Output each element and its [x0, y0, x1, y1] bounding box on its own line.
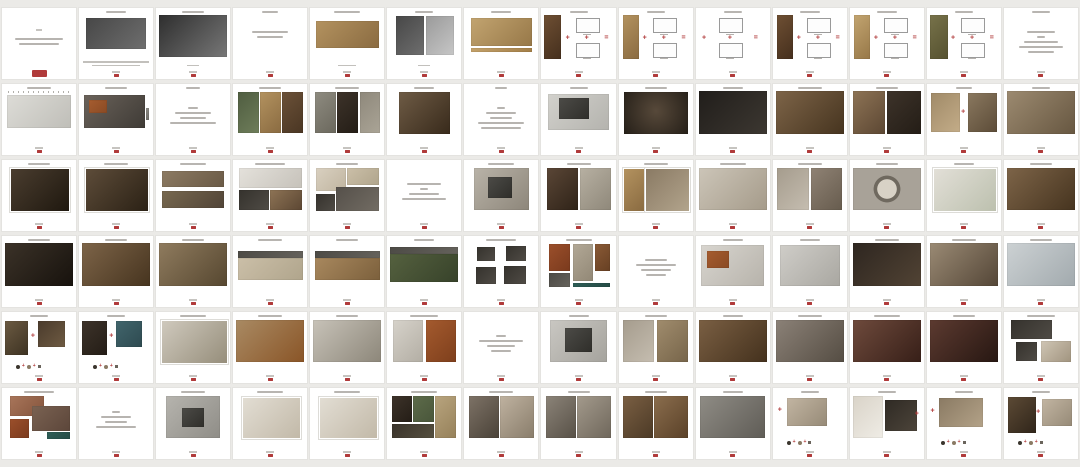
slide-footer — [387, 451, 461, 457]
slide-thumbnail[interactable]: + — [850, 388, 924, 459]
slide-title — [28, 163, 50, 165]
brand-logo — [114, 74, 119, 77]
slide-image — [577, 396, 611, 438]
image-caption — [82, 61, 150, 66]
slide-image — [506, 246, 526, 261]
slide-thumbnail[interactable] — [2, 8, 76, 79]
slide-thumbnail[interactable] — [310, 236, 384, 307]
caption-line — [83, 61, 149, 63]
brand-logo — [268, 378, 273, 381]
slide-footer — [619, 451, 693, 457]
plus-icon: + — [1024, 440, 1027, 445]
brand-logo — [345, 302, 350, 305]
slide-content — [1007, 91, 1075, 142]
slide-image — [595, 244, 610, 271]
slide-thumbnail[interactable] — [387, 388, 461, 459]
slide-thumbnail[interactable] — [464, 236, 538, 307]
slide-thumbnail[interactable] — [387, 236, 461, 307]
slide-content — [236, 167, 304, 218]
slide-image — [699, 168, 767, 210]
slide-thumbnail[interactable]: +++ — [79, 312, 153, 383]
slide-image — [476, 267, 496, 283]
slide-footer — [541, 375, 615, 381]
brand-logo — [576, 226, 581, 229]
text-line — [170, 122, 216, 124]
slide-footer — [387, 375, 461, 381]
brand-logo — [345, 226, 350, 229]
slide-image — [7, 95, 71, 128]
slide-thumbnail[interactable] — [387, 160, 461, 231]
slide-thumbnail[interactable] — [2, 84, 76, 155]
slide-title — [27, 87, 51, 89]
slide-thumbnail[interactable] — [233, 236, 307, 307]
slide-thumbnail[interactable] — [927, 160, 1001, 231]
slide-title — [30, 315, 48, 317]
page-number — [266, 451, 274, 453]
slide-thumbnail[interactable] — [156, 388, 230, 459]
text-line — [1037, 36, 1045, 38]
slide-thumbnail[interactable]: +++ — [773, 388, 847, 459]
slide-thumbnail[interactable] — [696, 236, 770, 307]
slide-title — [875, 239, 899, 241]
plus-icon: + — [1036, 409, 1040, 416]
slide-image — [182, 408, 204, 426]
slide-image — [699, 320, 767, 362]
slide-image — [435, 396, 455, 438]
brand-logo — [730, 150, 735, 153]
text-line — [497, 107, 505, 109]
brand-logo — [653, 378, 658, 381]
slide-title — [105, 87, 127, 89]
slide-content — [544, 395, 612, 446]
slide-title — [800, 11, 820, 13]
slide-content — [467, 319, 535, 370]
material-dot-icon — [798, 441, 802, 445]
slide-thumbnail[interactable]: +++ — [2, 312, 76, 383]
slide-footer — [927, 147, 1001, 153]
slide-thumbnail[interactable] — [1004, 160, 1078, 231]
slide-image — [854, 15, 870, 59]
slide-thumbnail[interactable] — [156, 236, 230, 307]
slide-title — [414, 87, 434, 89]
slide-thumbnail[interactable]: ++= — [850, 8, 924, 79]
slide-footer — [387, 223, 461, 229]
brand-logo — [114, 150, 119, 153]
slide-title — [489, 391, 513, 393]
slide-content — [159, 15, 227, 66]
caption-line — [187, 65, 199, 67]
equals-icon: = — [990, 34, 994, 41]
slide-footer — [464, 375, 538, 381]
page-number — [729, 223, 737, 225]
slide-content — [699, 167, 767, 218]
material-icons-row: ++ — [16, 364, 41, 369]
page-number — [806, 147, 814, 149]
slide-content — [390, 167, 458, 218]
slide-content: +++ — [930, 395, 998, 446]
slide-thumbnail[interactable] — [464, 84, 538, 155]
slide-thumbnail[interactable] — [156, 160, 230, 231]
slide-thumbnail[interactable] — [464, 388, 538, 459]
slide-footer — [310, 147, 384, 153]
brand-logo — [191, 378, 196, 381]
plus-icon: + — [31, 333, 35, 340]
slide-thumbnail[interactable] — [541, 312, 615, 383]
slide-content — [159, 395, 227, 446]
slide-thumbnail[interactable]: ++= — [541, 8, 615, 79]
slide-title — [798, 87, 822, 89]
slide-footer — [773, 451, 847, 457]
text-line — [481, 127, 521, 129]
brand-logo — [653, 226, 658, 229]
slide-title — [723, 239, 743, 241]
text-line — [1024, 41, 1058, 43]
plus-icon: + — [797, 34, 801, 41]
page-number — [1037, 451, 1045, 453]
slide-content — [390, 395, 458, 446]
slide-thumbnail[interactable]: ++= — [696, 8, 770, 79]
slide-thumbnail[interactable] — [619, 84, 693, 155]
slide-title — [955, 11, 973, 13]
brand-logo — [114, 378, 119, 381]
plus-icon: + — [99, 364, 102, 369]
slide-thumbnail[interactable] — [79, 8, 153, 79]
slide-footer — [1004, 147, 1078, 153]
plus-icon: + — [961, 109, 965, 116]
slide-thumbnail[interactable] — [850, 236, 924, 307]
slide-title — [645, 87, 667, 89]
slide-thumbnail[interactable] — [156, 84, 230, 155]
slide-footer — [773, 375, 847, 381]
slide-thumbnail[interactable]: +++ — [1004, 388, 1078, 459]
caption-line — [92, 65, 140, 67]
plus-icon: + — [728, 34, 732, 41]
plus-icon: + — [566, 34, 570, 41]
page-number — [806, 451, 814, 453]
slide-footer — [850, 451, 924, 457]
slide-title — [258, 315, 282, 317]
slide-thumbnail[interactable] — [79, 388, 153, 459]
slide-title — [255, 163, 285, 165]
slide-thumbnail[interactable] — [696, 160, 770, 231]
slide-thumbnail[interactable] — [541, 388, 615, 459]
page-number — [112, 299, 120, 301]
slide-content — [853, 91, 921, 142]
slide-image — [471, 48, 532, 53]
plus-icon: + — [33, 364, 36, 369]
plus-icon: + — [893, 34, 897, 41]
slide-thumbnail[interactable]: +++ — [927, 388, 1001, 459]
slide-image — [146, 108, 149, 119]
slide-image — [38, 321, 65, 347]
material-swatch-icon — [1040, 441, 1043, 444]
slide-title — [180, 315, 206, 317]
slide-image — [239, 190, 269, 209]
slide-image — [399, 92, 449, 134]
slide-title — [1032, 391, 1050, 393]
slide-thumbnail[interactable] — [541, 236, 615, 307]
page-number — [35, 375, 43, 377]
page-number — [112, 375, 120, 377]
slide-thumbnail[interactable] — [850, 84, 924, 155]
page-number — [189, 223, 197, 225]
slide-image — [580, 168, 611, 210]
slide-footer — [619, 223, 693, 229]
slide-image — [1041, 341, 1071, 361]
body-text — [159, 107, 227, 124]
slide-thumbnail[interactable] — [773, 312, 847, 383]
slide-thumbnail[interactable] — [1004, 236, 1078, 307]
brand-logo — [1038, 150, 1043, 153]
slide-thumbnail[interactable] — [310, 160, 384, 231]
page-number — [1037, 71, 1045, 73]
brand-logo — [422, 226, 427, 229]
page-number — [420, 451, 428, 453]
slide-thumbnail[interactable] — [156, 312, 230, 383]
slide-content — [622, 243, 690, 294]
slide-thumbnail[interactable] — [1004, 312, 1078, 383]
material-dot-icon — [952, 441, 956, 445]
slide-thumbnail[interactable] — [619, 388, 693, 459]
slide-footer — [619, 71, 693, 77]
slide-image — [853, 91, 886, 134]
material-icons-row: ++ — [1018, 440, 1043, 445]
slide-thumbnail[interactable] — [850, 160, 924, 231]
slide-image — [645, 168, 690, 212]
slide-image — [1007, 91, 1075, 134]
slide-image — [116, 321, 142, 347]
brand-logo — [653, 74, 658, 77]
slide-image — [623, 320, 654, 362]
slide-image — [390, 247, 458, 254]
slide-footer — [464, 71, 538, 77]
slide-image — [315, 258, 380, 279]
body-text — [390, 183, 458, 200]
page-number — [497, 223, 505, 225]
slide-thumbnail[interactable] — [387, 8, 461, 79]
equals-icon: = — [754, 34, 758, 41]
brand-logo — [1038, 454, 1043, 457]
slide-title — [952, 239, 976, 241]
slide-content — [313, 167, 381, 218]
slide-thumbnail[interactable] — [310, 84, 384, 155]
slide-thumbnail[interactable] — [541, 84, 615, 155]
page-number — [652, 299, 660, 301]
brand-logo — [807, 302, 812, 305]
slide-footer — [310, 375, 384, 381]
slide-thumbnail[interactable] — [696, 388, 770, 459]
slide-content — [5, 167, 73, 218]
page-number — [497, 147, 505, 149]
slide-thumbnail[interactable] — [464, 8, 538, 79]
slide-footer — [541, 147, 615, 153]
brand-logo — [37, 302, 42, 305]
page-number — [35, 223, 43, 225]
slide-footer — [927, 375, 1001, 381]
slide-thumbnail[interactable] — [696, 84, 770, 155]
slide-thumbnail[interactable] — [310, 388, 384, 459]
slide-footer — [2, 70, 76, 77]
text-line — [105, 421, 127, 423]
brand-logo — [345, 150, 350, 153]
slide-content — [853, 319, 921, 370]
slide-title — [800, 239, 820, 241]
slide-thumbnail[interactable] — [79, 236, 153, 307]
slide-footer — [233, 147, 307, 153]
brand-logo — [730, 378, 735, 381]
text-line — [420, 188, 428, 190]
slide-thumbnail[interactable] — [696, 312, 770, 383]
text-line — [641, 269, 671, 271]
page-number — [575, 223, 583, 225]
body-text — [467, 335, 535, 352]
slide-footer — [79, 451, 153, 457]
brand-logo — [114, 302, 119, 305]
slide-footer — [464, 299, 538, 305]
slide-thumbnail[interactable] — [1004, 8, 1078, 79]
slide-thumbnail[interactable] — [2, 160, 76, 231]
slide-thumbnail[interactable] — [387, 312, 461, 383]
slide-thumbnail[interactable] — [773, 84, 847, 155]
presentation-overview: ++=++=++=++=++=++=+++++++++++++++++ — [0, 0, 1080, 467]
slide-footer — [233, 375, 307, 381]
slide-thumbnail[interactable] — [233, 388, 307, 459]
slide-content — [467, 395, 535, 446]
slide-thumbnail[interactable] — [79, 84, 153, 155]
page-number — [729, 451, 737, 453]
slide-thumbnail[interactable] — [464, 312, 538, 383]
slide-content — [236, 15, 304, 66]
slide-thumbnail[interactable] — [619, 236, 693, 307]
slide-footer — [233, 223, 307, 229]
slide-thumbnail[interactable] — [387, 84, 461, 155]
page-number — [652, 223, 660, 225]
slide-image — [787, 398, 828, 426]
plus-icon: + — [643, 34, 647, 41]
brand-logo — [268, 302, 273, 305]
slide-thumbnail[interactable] — [464, 160, 538, 231]
slide-thumbnail[interactable]: ++= — [773, 8, 847, 79]
slide-thumbnail[interactable] — [927, 236, 1001, 307]
slide-thumbnail[interactable]: ++= — [619, 8, 693, 79]
drawing-caption — [968, 58, 976, 59]
page-number — [112, 71, 120, 73]
slide-image — [776, 320, 844, 362]
slide-footer — [850, 223, 924, 229]
slide-content — [5, 395, 73, 446]
slide-footer — [2, 299, 76, 305]
brand-logo — [268, 454, 273, 457]
material-dot-icon — [16, 365, 20, 369]
page-number — [575, 147, 583, 149]
brand-logo — [422, 454, 427, 457]
slide-image — [853, 243, 921, 286]
page-number — [806, 223, 814, 225]
text-line — [496, 335, 506, 337]
slide-thumbnail[interactable] — [310, 8, 384, 79]
brand-logo — [499, 150, 504, 153]
brand-logo — [807, 74, 812, 77]
page-number — [112, 223, 120, 225]
cover-mark — [36, 29, 42, 31]
plus-icon: + — [1035, 440, 1038, 445]
slide-thumbnail[interactable]: ++= — [927, 8, 1001, 79]
slide-thumbnail[interactable] — [156, 8, 230, 79]
slide-title — [1027, 315, 1055, 317]
material-dot-icon — [1018, 441, 1022, 445]
brand-logo — [32, 70, 47, 77]
slide-image — [5, 243, 73, 286]
text-line — [646, 274, 666, 276]
page-number — [343, 375, 351, 377]
slide-thumbnail[interactable] — [1004, 84, 1078, 155]
slide-content — [544, 319, 612, 370]
slide-thumbnail[interactable] — [619, 160, 693, 231]
slide-image — [282, 92, 302, 133]
text-line — [101, 416, 131, 418]
slide-title — [258, 239, 282, 241]
page-number — [35, 299, 43, 301]
slide-footer — [387, 147, 461, 153]
slide-footer — [927, 299, 1001, 305]
drawing-caption — [660, 58, 668, 59]
slide-thumbnail[interactable] — [310, 312, 384, 383]
slide-thumbnail[interactable] — [850, 312, 924, 383]
slide-content — [776, 243, 844, 294]
page-number — [420, 375, 428, 377]
furniture-line-drawing — [719, 43, 743, 58]
slide-thumbnail[interactable] — [2, 236, 76, 307]
slide-thumbnail[interactable] — [927, 312, 1001, 383]
slide-thumbnail[interactable]: + — [927, 84, 1001, 155]
slide-content — [390, 319, 458, 370]
slide-image — [47, 432, 70, 439]
slide-title — [182, 11, 204, 13]
slide-thumbnail[interactable] — [619, 312, 693, 383]
slide-thumbnail[interactable] — [2, 388, 76, 459]
slide-footer — [464, 451, 538, 457]
material-dot-icon — [104, 365, 108, 369]
slide-thumbnail[interactable] — [79, 160, 153, 231]
furniture-line-drawing — [961, 43, 985, 58]
slide-image — [565, 328, 592, 351]
slide-thumbnail[interactable] — [233, 84, 307, 155]
slide-thumbnail[interactable] — [233, 160, 307, 231]
slide-thumbnail[interactable] — [233, 8, 307, 79]
slide-title — [876, 87, 898, 89]
slide-thumbnail[interactable] — [541, 160, 615, 231]
slide-thumbnail[interactable] — [773, 236, 847, 307]
brand-logo — [884, 378, 889, 381]
slide-title — [569, 315, 589, 317]
text-line — [112, 411, 120, 413]
slide-image — [853, 168, 921, 210]
slide-title — [723, 315, 743, 317]
slide-title — [334, 391, 360, 393]
slide-image — [10, 168, 69, 212]
slide-title — [720, 163, 746, 165]
slide-thumbnail[interactable] — [233, 312, 307, 383]
page-number — [112, 451, 120, 453]
slide-content: +++ — [776, 395, 844, 446]
slide-content — [82, 243, 150, 294]
plus-icon: + — [662, 34, 666, 41]
slide-title — [414, 239, 434, 241]
slide-image — [624, 92, 688, 134]
page-number — [112, 147, 120, 149]
slide-footer — [1004, 299, 1078, 305]
slide-thumbnail[interactable] — [773, 160, 847, 231]
